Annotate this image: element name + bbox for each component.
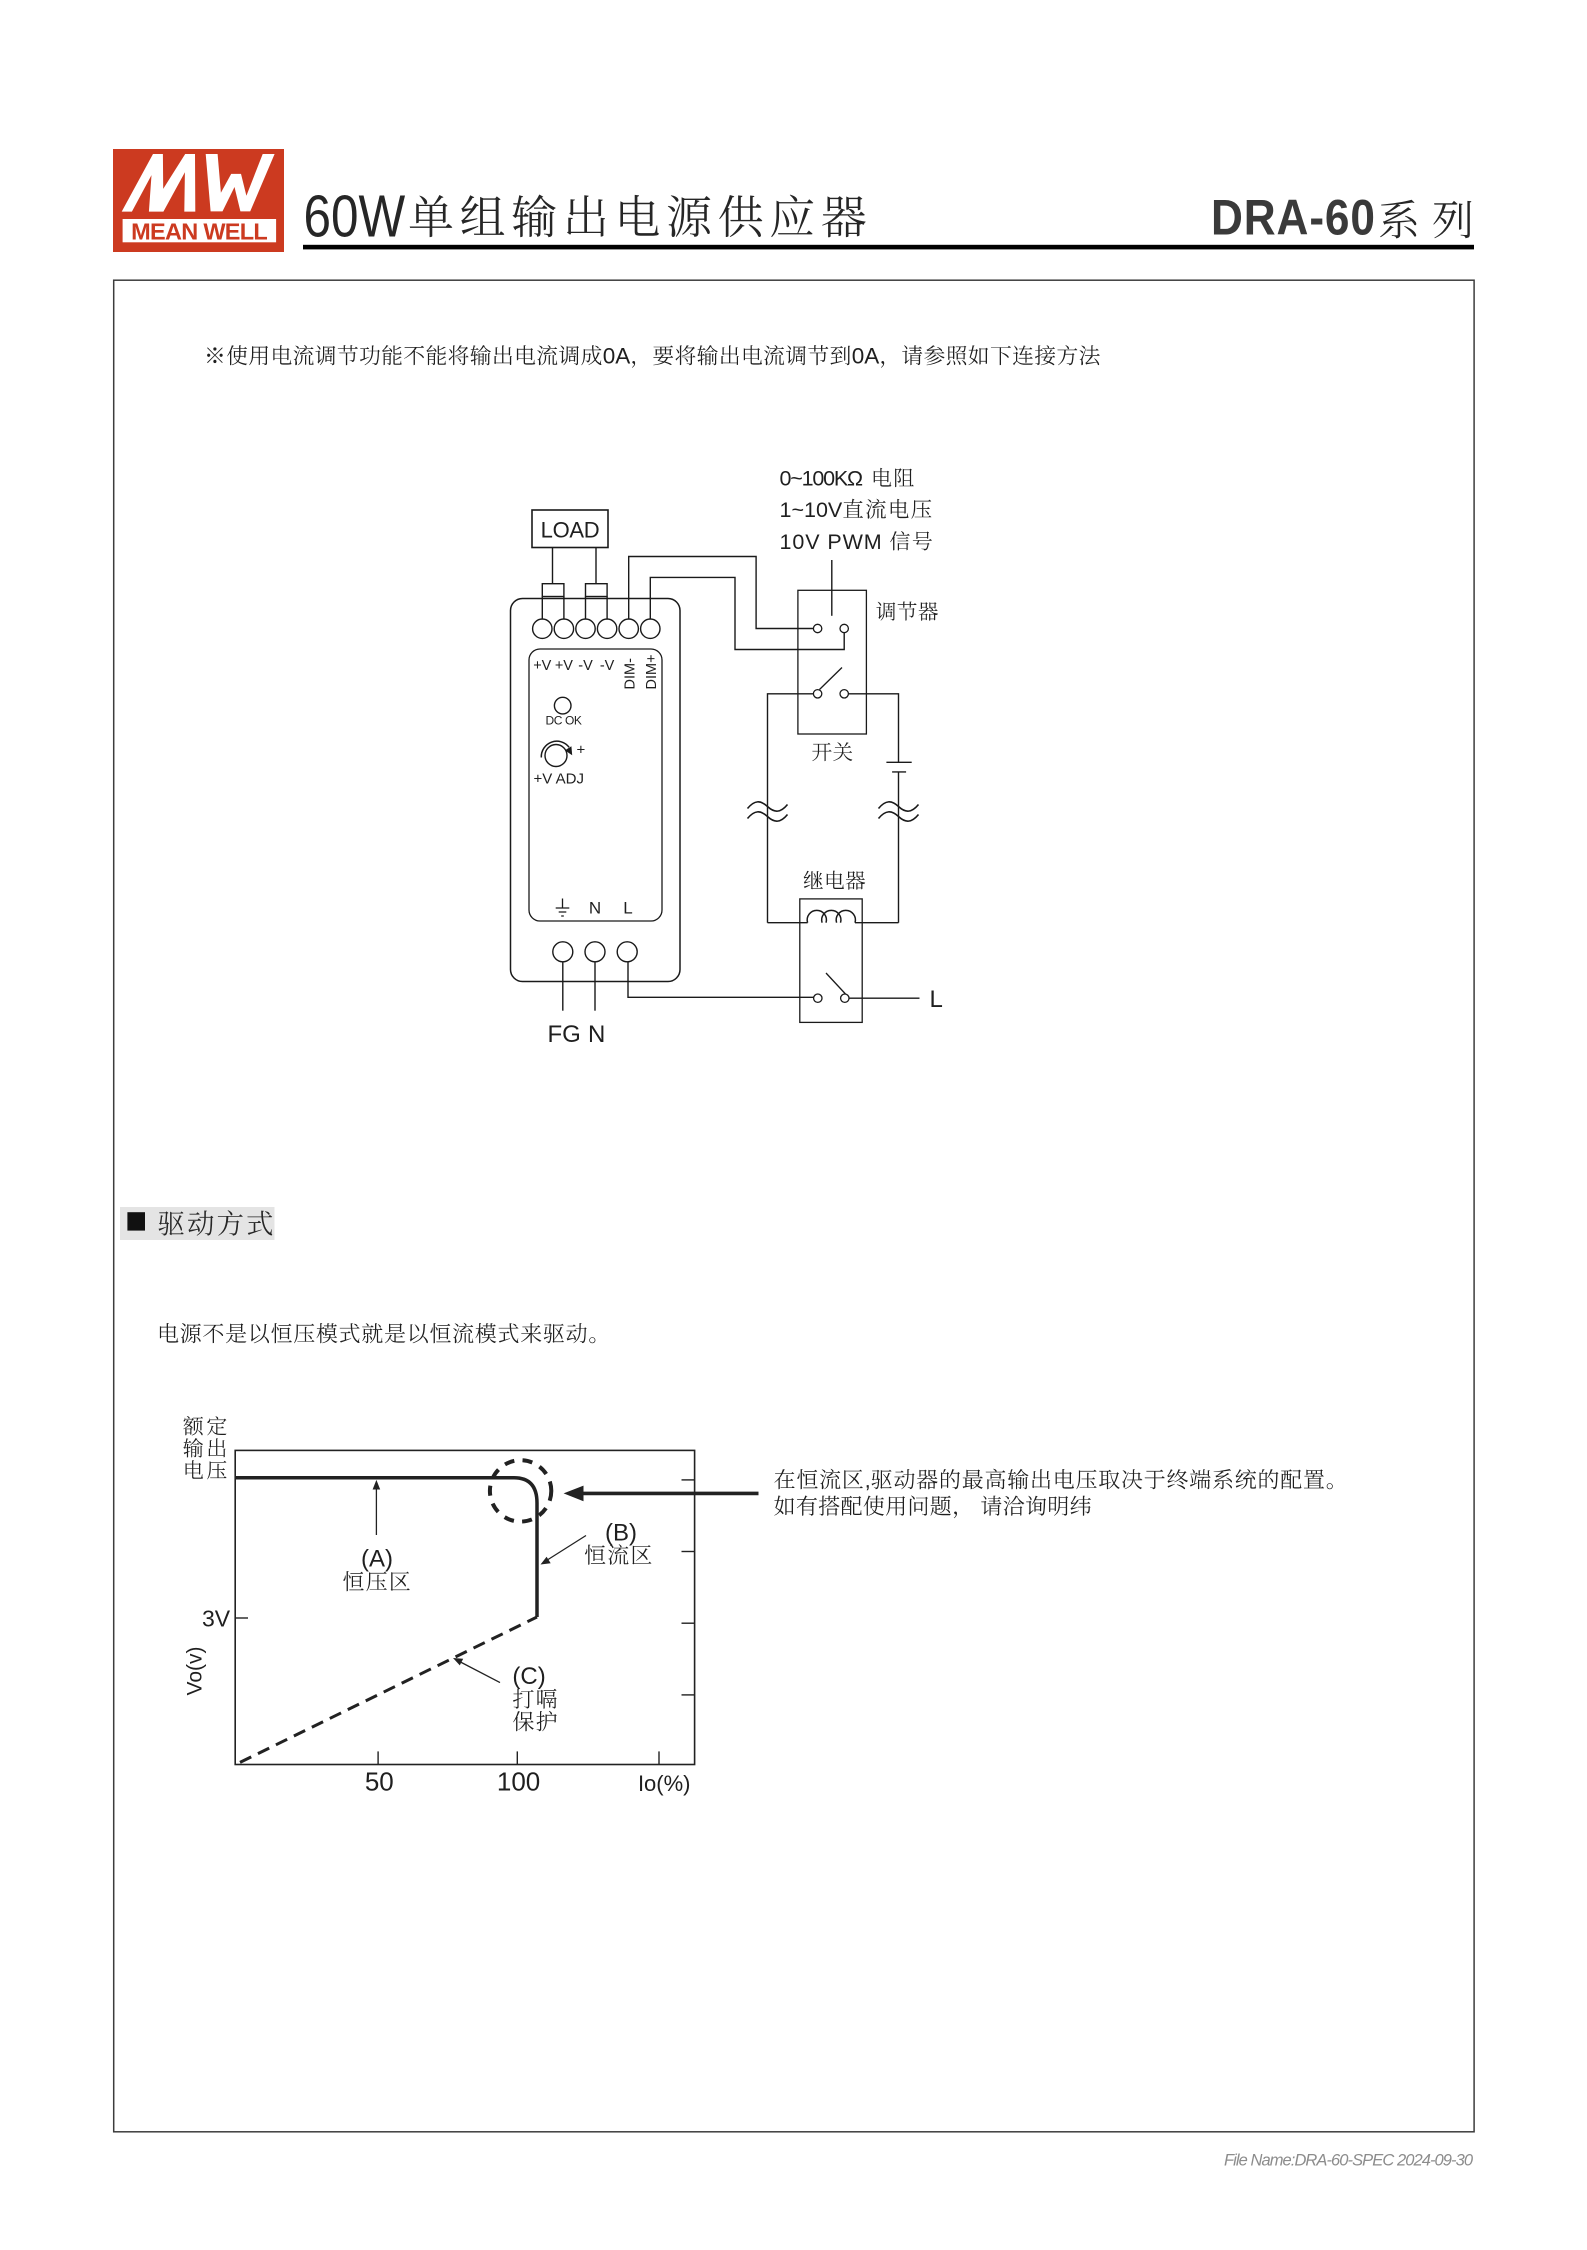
svg-text:(A): (A) (361, 1546, 393, 1573)
svg-text:LOAD: LOAD (541, 518, 600, 543)
svg-text:+: + (577, 742, 586, 759)
svg-text:N: N (588, 1021, 605, 1048)
svg-text:Vo(v): Vo(v) (184, 1646, 207, 1695)
svg-text:Io(%): Io(%) (638, 1771, 691, 1796)
svg-text:-V: -V (600, 658, 615, 674)
svg-text:-V: -V (578, 658, 593, 674)
svg-text:60W: 60W (304, 182, 406, 249)
svg-text:0A: 0A (852, 344, 880, 369)
svg-text:File Name:DRA-60-SPEC 2024-09: File Name:DRA-60-SPEC 2024-09-30 (1224, 2152, 1474, 2170)
svg-text:100: 100 (497, 1767, 540, 1797)
svg-text:,: , (865, 1468, 871, 1493)
svg-text:FG: FG (548, 1021, 581, 1048)
svg-text:(C): (C) (512, 1663, 545, 1690)
svg-text:1~10V: 1~10V (780, 498, 843, 522)
svg-text:50: 50 (365, 1767, 394, 1797)
svg-text:3V: 3V (202, 1606, 231, 1632)
svg-text:(B): (B) (605, 1520, 637, 1547)
svg-text:+V: +V (533, 658, 551, 674)
svg-text:0A: 0A (603, 344, 631, 369)
svg-text:DIM-: DIM- (623, 658, 639, 690)
svg-text:+V ADJ: +V ADJ (534, 771, 584, 788)
svg-text:10V PWM: 10V PWM (780, 530, 883, 554)
svg-text:L: L (623, 899, 632, 918)
svg-text:DC OK: DC OK (545, 714, 581, 728)
svg-text:+V: +V (555, 658, 573, 674)
svg-text:MEAN WELL: MEAN WELL (131, 218, 267, 244)
svg-text:L: L (930, 986, 943, 1013)
svg-text:DRA-60: DRA-60 (1211, 190, 1376, 246)
svg-text:N: N (589, 899, 601, 918)
svg-text:DIM+: DIM+ (644, 654, 660, 689)
svg-text:0~100KΩ: 0~100KΩ (780, 467, 864, 491)
